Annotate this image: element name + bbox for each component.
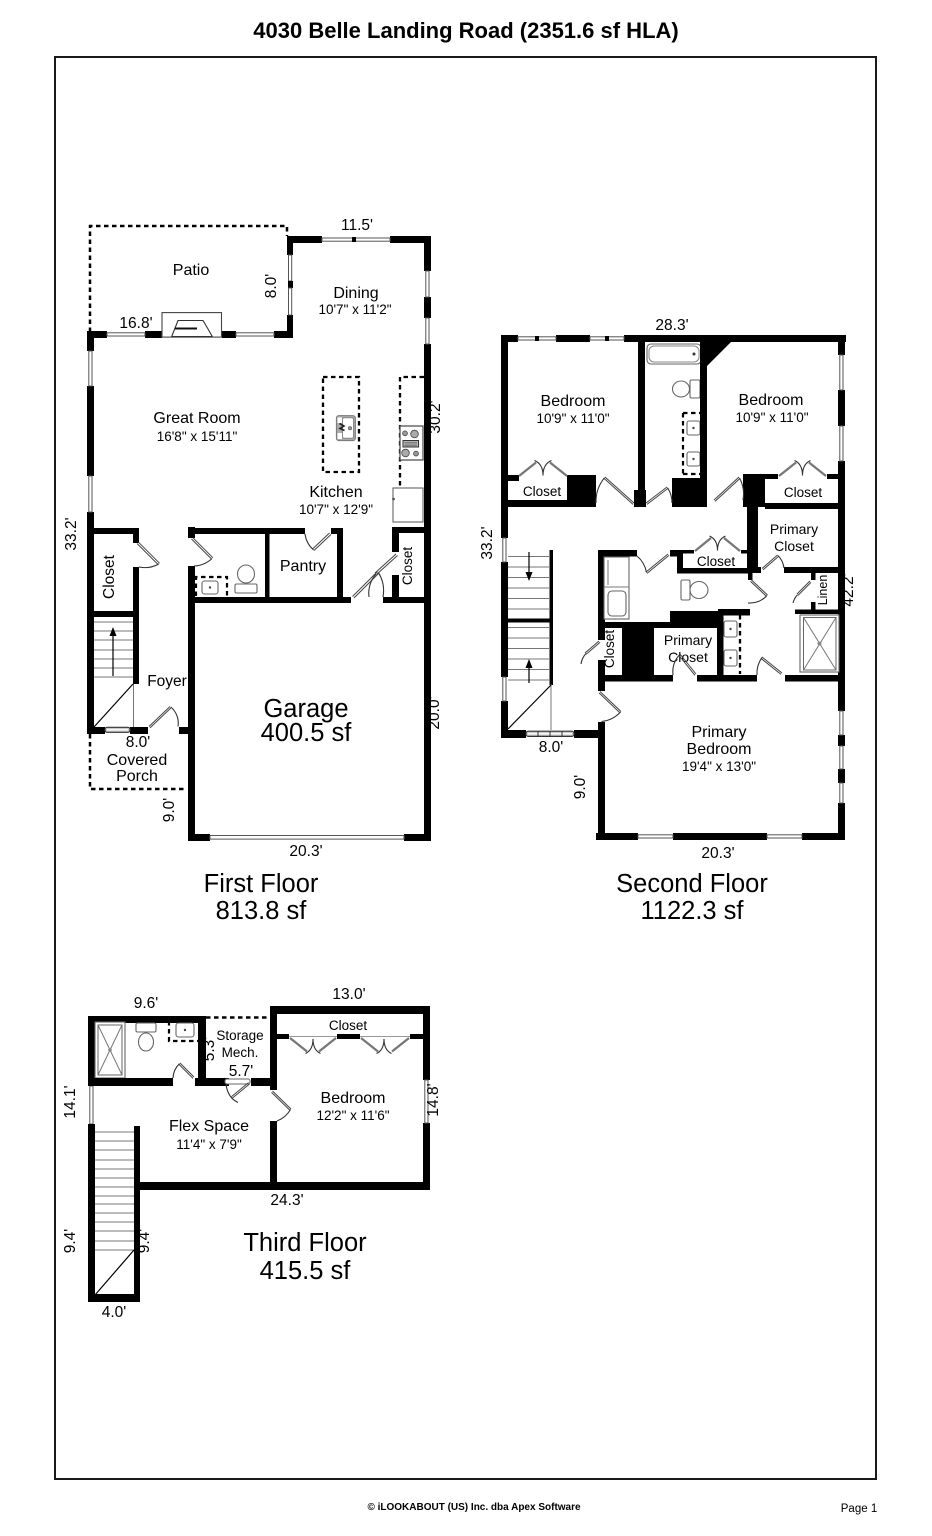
svg-text:Covered: Covered [107,752,167,769]
svg-text:Kitchen: Kitchen [309,484,362,501]
svg-text:Page 1: Page 1 [841,1503,877,1515]
svg-text:Closet: Closet [697,554,736,569]
svg-text:Third Floor: Third Floor [243,1229,367,1257]
svg-text:Great Room: Great Room [153,410,240,427]
svg-text:Closet: Closet [101,554,118,599]
svg-text:8.0': 8.0' [539,739,564,756]
svg-text:813.8 sf: 813.8 sf [216,897,308,925]
svg-text:Foyer: Foyer [147,673,187,690]
svg-text:Patio: Patio [173,262,210,279]
svg-text:13.0': 13.0' [332,986,365,1003]
svg-text:Closet: Closet [523,484,562,499]
svg-text:9.6': 9.6' [134,995,159,1012]
svg-text:14.8': 14.8' [425,1083,442,1116]
svg-text:14.1': 14.1' [62,1085,79,1118]
svg-text:20.0': 20.0' [426,696,443,729]
svg-text:9.0': 9.0' [572,775,589,800]
svg-text:24.3': 24.3' [270,1192,303,1209]
svg-text:Closet: Closet [774,538,814,554]
svg-text:12'2" x 11'6": 12'2" x 11'6" [316,1108,389,1123]
svg-text:5.7': 5.7' [229,1063,254,1080]
svg-text:9.4': 9.4' [136,1229,153,1254]
svg-text:10'9" x 11'0": 10'9" x 11'0" [536,411,609,426]
svg-text:Bedroom: Bedroom [739,392,804,409]
svg-text:16.8': 16.8' [119,315,152,332]
svg-text:4.0': 4.0' [102,1304,127,1321]
svg-text:11.5': 11.5' [341,217,373,234]
svg-text:Storage: Storage [216,1028,263,1043]
svg-text:Closet: Closet [400,547,415,586]
svg-text:10'7" x 11'2": 10'7" x 11'2" [318,302,391,317]
svg-text:16'8" x 15'11": 16'8" x 15'11" [157,429,238,444]
svg-text:Closet: Closet [602,630,617,669]
svg-text:1122.3 sf: 1122.3 sf [640,897,744,925]
svg-text:Dining: Dining [333,285,378,302]
svg-text:8.0': 8.0' [126,734,151,751]
svg-text:10'7" x 12'9": 10'7" x 12'9" [299,502,373,517]
svg-text:42.2': 42.2' [840,573,857,606]
svg-text:Pantry: Pantry [280,558,326,575]
svg-text:33.2': 33.2' [479,526,496,559]
svg-text:Bedroom: Bedroom [687,741,752,758]
svg-text:10'9" x 11'0": 10'9" x 11'0" [735,410,808,425]
svg-text:Primary: Primary [770,521,818,537]
svg-text:4030 Belle Landing Road (2351.: 4030 Belle Landing Road (2351.6 sf HLA) [253,18,678,43]
svg-text:30.2': 30.2' [427,400,444,433]
svg-text:Bedroom: Bedroom [541,393,606,410]
svg-text:9.4': 9.4' [62,1229,79,1254]
svg-text:Second Floor: Second Floor [616,870,768,898]
svg-text:Porch: Porch [116,768,158,785]
svg-text:8.0': 8.0' [263,274,280,299]
svg-text:Bedroom: Bedroom [321,1090,386,1107]
svg-text:Mech.: Mech. [222,1045,259,1060]
svg-text:400.5 sf: 400.5 sf [261,719,353,747]
svg-text:Flex Space: Flex Space [169,1118,249,1135]
svg-text:20.3': 20.3' [289,843,322,860]
svg-text:© iLOOKABOUT (US) Inc. dba Ape: © iLOOKABOUT (US) Inc. dba Apex Software [367,1502,581,1513]
svg-text:33.2': 33.2' [63,517,80,550]
svg-text:Linen: Linen [816,575,830,606]
svg-text:Primary: Primary [664,632,712,648]
svg-text:28.3': 28.3' [655,317,688,334]
svg-text:Closet: Closet [784,485,823,500]
svg-text:Primary: Primary [691,724,746,741]
svg-text:5.3': 5.3' [201,1037,218,1062]
svg-text:415.5 sf: 415.5 sf [260,1257,352,1285]
svg-text:Closet: Closet [329,1018,368,1033]
svg-text:11'4" x 7'9": 11'4" x 7'9" [176,1137,242,1152]
svg-text:19'4" x 13'0": 19'4" x 13'0" [682,759,756,774]
svg-text:9.0': 9.0' [161,798,178,823]
svg-text:First Floor: First Floor [204,870,319,898]
svg-text:20.3': 20.3' [701,845,734,862]
